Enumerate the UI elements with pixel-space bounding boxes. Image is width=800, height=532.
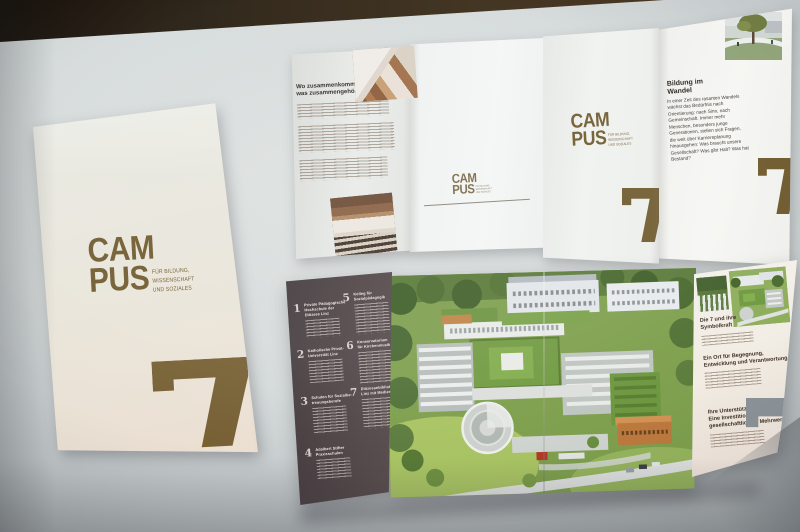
institution-number: 2 xyxy=(297,349,309,384)
body-text-placeholder xyxy=(308,359,344,384)
institution-number: 1 xyxy=(293,304,305,340)
panel-front-cover: CAM PUS FÜR BILDUNG,WISSENSCHAFTUND SOZI… xyxy=(543,28,659,266)
institution-item: 2 Katholische Privat-Universität Linz xyxy=(297,346,348,384)
panel-back-cover: CAM PUS FÜR BILDUNG,WISSENSCHAFTUND SOZI… xyxy=(410,38,543,252)
body-text-placeholder xyxy=(354,302,390,335)
institution-number: 4 xyxy=(304,448,316,481)
institution-item: 5 Kolleg fürSozialpädagogik xyxy=(342,290,393,336)
info-section-heading: Ein Ort für Begegnung, Entwicklung und V… xyxy=(703,349,788,370)
institution-item: 3 Schulen für Sozialbe-treuungsberufe xyxy=(300,393,351,435)
institution-name: Konservatoriumfür Kirchenmusik xyxy=(357,337,395,350)
logo-tagline: FÜR BILDUNG,WISSENSCHAFTUND SOZIALES xyxy=(608,131,634,148)
institution-name: Adalbert StifterPraxisschulen xyxy=(315,445,353,458)
photo-of-brochures: CAM PUS FÜR BILDUNG,WISSENSCHAFTUND SOZI… xyxy=(0,0,800,532)
staircase-photo xyxy=(330,193,398,269)
logo-tagline: FÜR BILDUNG,WISSENSCHAFTUND SOZIALES xyxy=(475,185,492,196)
bildung-heading: Bildung im Wandel xyxy=(667,78,704,97)
body-text-placeholder xyxy=(299,156,388,181)
info-section-heading: Die 7 und ihre Symbolkraft xyxy=(700,315,737,332)
institution-name: Private PädagogischeHochschule derDiözes… xyxy=(304,300,346,318)
body-text-placeholder xyxy=(358,350,394,385)
campus-logo: CAM PUS FÜR BILDUNG,WISSENSCHAFTUND SOZI… xyxy=(87,231,210,297)
logo-cam: CAM xyxy=(87,232,194,267)
body-text-placeholder xyxy=(297,100,390,119)
institution-name: Katholische Privat-Universität Linz xyxy=(308,346,346,359)
body-text-placeholder xyxy=(312,406,348,435)
institution-number: 5 xyxy=(342,293,354,336)
institution-item: 6 Konservatoriumfür Kirchenmusik xyxy=(346,337,397,385)
numeral-seven-graphic xyxy=(758,158,798,214)
body-text-placeholder xyxy=(305,318,340,339)
bildung-body-text: In einer Zeit des rasanten Wandels wächs… xyxy=(667,93,750,163)
body-text-placeholder xyxy=(701,331,754,345)
divider-line xyxy=(424,199,530,206)
logo-tagline: FÜR BILDUNG,WISSENSCHAFTUND SOZIALES xyxy=(152,267,195,295)
aerial-campus-photo xyxy=(386,268,696,500)
institution-number: 7 xyxy=(350,387,362,430)
body-text-placeholder xyxy=(704,368,761,389)
institution-item: 4 Adalbert StifterPraxisschulen xyxy=(304,445,354,481)
body-text-placeholder xyxy=(316,458,351,481)
numeral-seven-graphic xyxy=(622,188,664,242)
logo-pus: PUS xyxy=(88,264,150,297)
institution-item: 1 Private PädagogischeHochschule derDiöz… xyxy=(293,301,344,340)
aerial-render-photo xyxy=(729,266,791,327)
tree-courtyard-photo xyxy=(725,12,782,60)
intro-heading: Wo zusammenkommt, was zusammengehört xyxy=(296,82,360,99)
cover-page: CAM PUS FÜR BILDUNG,WISSENSCHAFTUND SOZI… xyxy=(33,100,258,456)
foliage-building-photo xyxy=(696,276,729,312)
campus-logo-small: CAM PUS FÜR BILDUNG,WISSENSCHAFTUND SOZI… xyxy=(451,171,497,196)
institutions-panel: 1 Private PädagogischeHochschule derDiöz… xyxy=(286,272,392,505)
institution-name: Schulen für Sozialbe-treuungsberufe xyxy=(311,393,352,406)
institution-number: 3 xyxy=(300,396,312,435)
institution-name: Kolleg fürSozialpädagogik xyxy=(353,290,391,303)
interior-atrium-photo xyxy=(352,46,417,102)
campus-logo-medium: CAM PUS FÜR BILDUNG,WISSENSCHAFTUND SOZI… xyxy=(570,110,642,149)
panel-bildung: Bildung im Wandel In einer Zeit des rasa… xyxy=(659,6,792,269)
numeral-seven-graphic xyxy=(151,357,251,450)
body-text-placeholder xyxy=(298,122,395,153)
